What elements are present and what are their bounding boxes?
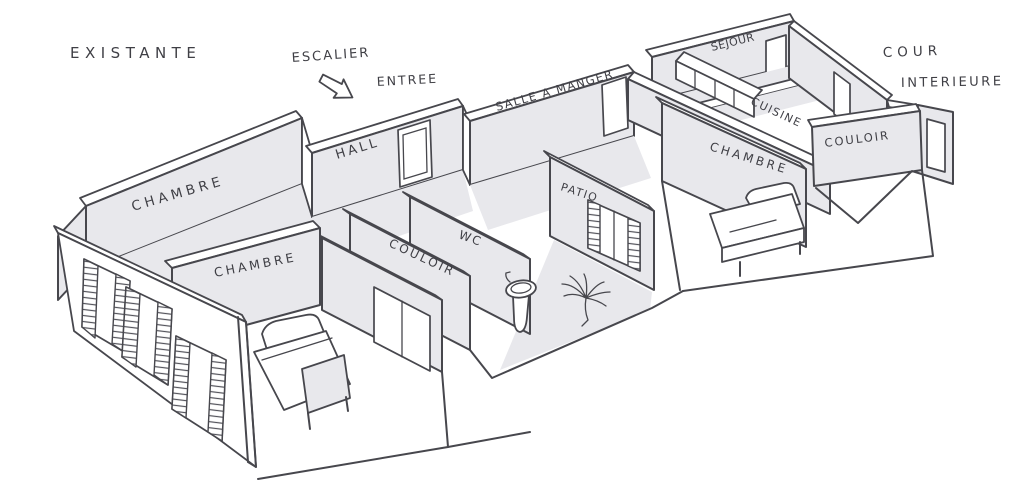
label-escalier-note: ESCALIER bbox=[291, 46, 371, 66]
label-existante-note: EXISTANTE bbox=[70, 44, 201, 62]
label-interieure-note: INTERIEURE bbox=[901, 74, 1004, 91]
door-salle-a-manger bbox=[602, 77, 628, 136]
window-3-shutter-right bbox=[208, 353, 226, 441]
window-2-shutter-left bbox=[122, 287, 140, 367]
label-entree-note: ENTREE bbox=[376, 71, 438, 89]
door-right-end bbox=[927, 119, 945, 172]
right-rooms bbox=[656, 97, 922, 290]
patio-window-shutter-left bbox=[588, 200, 600, 253]
window-2-shutter-right bbox=[154, 302, 172, 385]
bed bbox=[254, 315, 350, 429]
floor-plan-sketch: EXISTANTEESCALIERENTREESALLE A MANGERSEJ… bbox=[0, 0, 1024, 499]
patio-window-shutter-right bbox=[628, 218, 640, 271]
sketch-page: EXISTANTEESCALIERENTREESALLE A MANGERSEJ… bbox=[0, 0, 1024, 499]
window-1-shutter-left bbox=[82, 259, 98, 338]
arrow-shape bbox=[316, 69, 359, 106]
entry-direction-arrow-icon bbox=[316, 69, 359, 106]
floor-edge-chambre-front bbox=[258, 432, 530, 479]
floor-edge-step bbox=[442, 372, 448, 447]
window-3-shutter-left bbox=[172, 336, 190, 418]
label-cour-note: COUR bbox=[883, 43, 943, 61]
big-chambre bbox=[54, 221, 350, 467]
floor-edge-chambre-right-left bbox=[662, 181, 680, 290]
